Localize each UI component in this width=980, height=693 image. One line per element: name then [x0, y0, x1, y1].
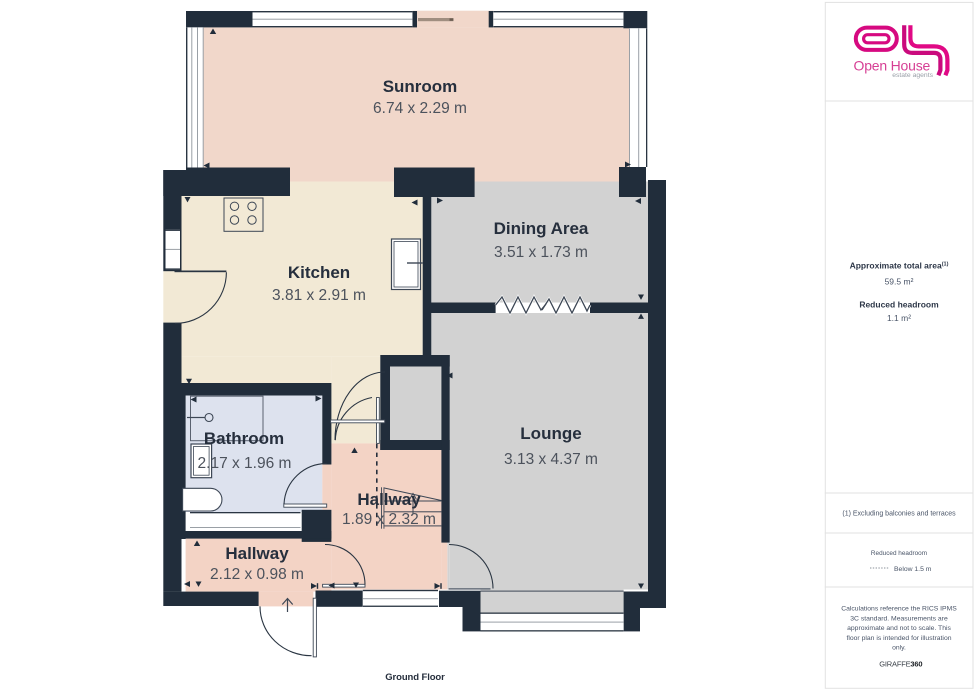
svg-text:Reduced headroom: Reduced headroom — [871, 550, 927, 557]
svg-text:3.81 x 2.91 m: 3.81 x 2.91 m — [272, 287, 366, 304]
svg-text:3C standard. Measurements are: 3C standard. Measurements are — [850, 615, 948, 622]
svg-text:Hallway: Hallway — [357, 490, 421, 509]
svg-text:Below 1.5 m: Below 1.5 m — [894, 566, 932, 573]
svg-text:Dining Area: Dining Area — [494, 219, 589, 238]
svg-text:1.89 x 2.32 m: 1.89 x 2.32 m — [342, 511, 436, 528]
svg-text:2.12 x 0.98 m: 2.12 x 0.98 m — [210, 566, 304, 583]
svg-text:approximate and not to scale.: approximate and not to scale. This — [847, 625, 951, 632]
svg-text:Approximate total area(1): Approximate total area(1) — [850, 261, 949, 271]
svg-text:Hallway: Hallway — [225, 544, 289, 563]
svg-text:Ground Floor: Ground Floor — [385, 672, 445, 683]
svg-text:Calculations reference the RIC: Calculations reference the RICS IPMS — [841, 606, 957, 613]
svg-text:59.5 m²: 59.5 m² — [885, 277, 914, 287]
svg-text:floor plan is intended for ill: floor plan is intended for illustration — [846, 635, 951, 642]
svg-text:2.17 x 1.96 m: 2.17 x 1.96 m — [198, 455, 292, 472]
svg-text:6.74 x 2.29 m: 6.74 x 2.29 m — [373, 100, 467, 117]
svg-text:Reduced headroom: Reduced headroom — [859, 300, 939, 310]
svg-text:1.1 m²: 1.1 m² — [887, 313, 911, 323]
svg-text:Bathroom: Bathroom — [204, 429, 284, 448]
svg-text:estate agents: estate agents — [892, 72, 933, 79]
svg-text:Lounge: Lounge — [520, 424, 581, 443]
svg-text:3.51 x 1.73 m: 3.51 x 1.73 m — [494, 244, 588, 261]
svg-text:GIRAFFE360: GIRAFFE360 — [879, 660, 922, 669]
svg-text:(1) Excluding balconies and te: (1) Excluding balconies and terraces — [842, 511, 956, 518]
svg-text:3.13 x 4.37 m: 3.13 x 4.37 m — [504, 451, 598, 468]
svg-text:only.: only. — [892, 645, 906, 652]
svg-text:Kitchen: Kitchen — [288, 263, 350, 282]
svg-text:Sunroom: Sunroom — [383, 77, 458, 96]
